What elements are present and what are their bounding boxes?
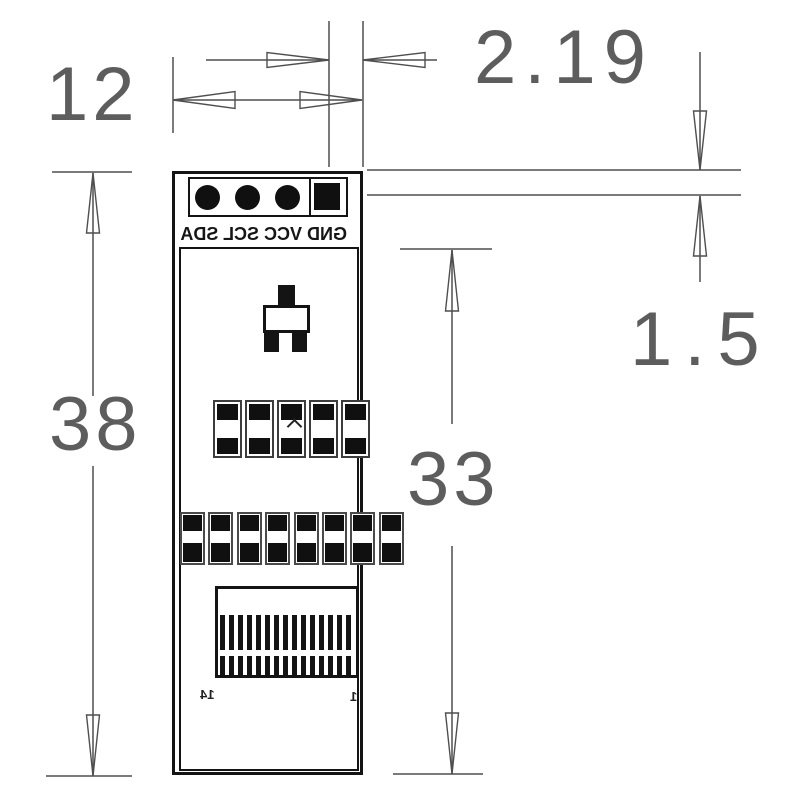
fpc-finger <box>301 656 306 678</box>
fpc-finger <box>283 615 288 650</box>
pin-pad-square <box>314 183 340 210</box>
fpc-finger <box>274 656 279 678</box>
fpc-finger <box>220 656 225 678</box>
smd-pad <box>265 512 290 565</box>
smd-pad-bottom <box>297 543 316 562</box>
smd-pad-top <box>268 515 287 531</box>
fpc-finger <box>265 656 270 678</box>
smd-pad-bottom <box>382 543 401 562</box>
fpc-finger-row-upper <box>220 615 351 650</box>
dim-board-width-lines <box>173 21 363 167</box>
ic-pad-top <box>217 404 238 420</box>
fpc-finger <box>337 615 342 650</box>
dim-label-pin-row-offset: 1.5 <box>630 302 772 378</box>
smd-pad-bottom <box>183 543 202 562</box>
pin-hole <box>235 185 260 210</box>
smd-pad-bottom <box>240 543 259 562</box>
smd-pad-bottom <box>325 543 344 562</box>
smd-pad <box>237 512 262 565</box>
fpc-finger <box>247 615 252 650</box>
component-leg-left <box>264 333 279 352</box>
pin-hole-row <box>195 185 300 210</box>
fpc-finger <box>229 656 234 678</box>
ic-pad-top <box>281 404 302 420</box>
smd-pad <box>322 512 347 565</box>
fpc-finger <box>301 615 306 650</box>
smd-pad <box>350 512 375 565</box>
smd-pad <box>208 512 233 565</box>
fpc-finger <box>319 656 324 678</box>
smd-pad-top <box>211 515 230 531</box>
fpc-finger <box>292 615 297 650</box>
ic-pad-column <box>213 400 242 458</box>
fpc-finger <box>265 615 270 650</box>
ic-pad-bottom <box>345 438 366 454</box>
pin-hole <box>275 185 300 210</box>
dim-board-height-lines <box>46 172 132 776</box>
smd-pad-top <box>353 515 372 531</box>
fpc-finger <box>247 656 252 678</box>
dim-label-display-height: 33 <box>407 442 500 518</box>
ic-pad-bottom <box>281 438 302 454</box>
dim-label-board-height: 38 <box>49 387 142 463</box>
smd-pad <box>379 512 404 565</box>
fpc-finger <box>256 615 261 650</box>
smd-pad-bottom <box>268 543 287 562</box>
ic-pad-top <box>249 404 270 420</box>
ic-pad-top <box>313 404 334 420</box>
fpc-finger <box>238 615 243 650</box>
smd-pad-bottom <box>211 543 230 562</box>
ic-pad-bottom <box>313 438 334 454</box>
fpc-finger <box>283 656 288 678</box>
ic-pad-column <box>245 400 274 458</box>
connector-pin14-label: 14 <box>200 687 214 702</box>
fpc-finger <box>319 615 324 650</box>
smd-pad-top <box>382 515 401 531</box>
component-cap <box>278 285 295 307</box>
smd-pad-bottom <box>353 543 372 562</box>
fpc-finger <box>292 656 297 678</box>
fpc-finger <box>310 615 315 650</box>
ic-pad-column <box>341 400 370 458</box>
fpc-finger <box>346 656 351 678</box>
fpc-finger <box>346 615 351 650</box>
fpc-finger <box>310 656 315 678</box>
component-body <box>263 305 310 333</box>
dim-label-board-width: 12 <box>46 57 139 133</box>
fpc-finger <box>238 656 243 678</box>
component-leg-right <box>292 333 307 352</box>
smd-pad-row <box>180 512 404 565</box>
ic-pad-bottom <box>249 438 270 454</box>
ic-pad-bottom <box>217 438 238 454</box>
smd-pad-top <box>325 515 344 531</box>
smd-pad <box>294 512 319 565</box>
ic-pad-column <box>309 400 338 458</box>
dimension-drawing: GND VCC SCL SDA <box>0 0 800 800</box>
ic-pad-top <box>345 404 366 420</box>
smd-pad <box>180 512 205 565</box>
fpc-finger <box>229 615 234 650</box>
pin-hole <box>195 185 220 210</box>
connector-pin1-label: 1 <box>350 689 357 704</box>
fpc-finger-row-lower <box>220 656 351 678</box>
fpc-finger <box>328 615 333 650</box>
dim-pad-edge-offset-lines <box>206 53 437 68</box>
smd-pad-top <box>240 515 259 531</box>
fpc-finger <box>337 656 342 678</box>
fpc-finger <box>256 656 261 678</box>
pin-box-divider <box>309 177 311 217</box>
smd-pad-top <box>297 515 316 531</box>
fpc-finger <box>328 656 333 678</box>
pin-silkscreen-labels: GND VCC SCL SDA <box>187 224 347 245</box>
fpc-finger <box>274 615 279 650</box>
smd-pad-top <box>183 515 202 531</box>
dim-label-pad-edge-offset: 2.19 <box>474 20 654 96</box>
fpc-finger <box>220 615 225 650</box>
